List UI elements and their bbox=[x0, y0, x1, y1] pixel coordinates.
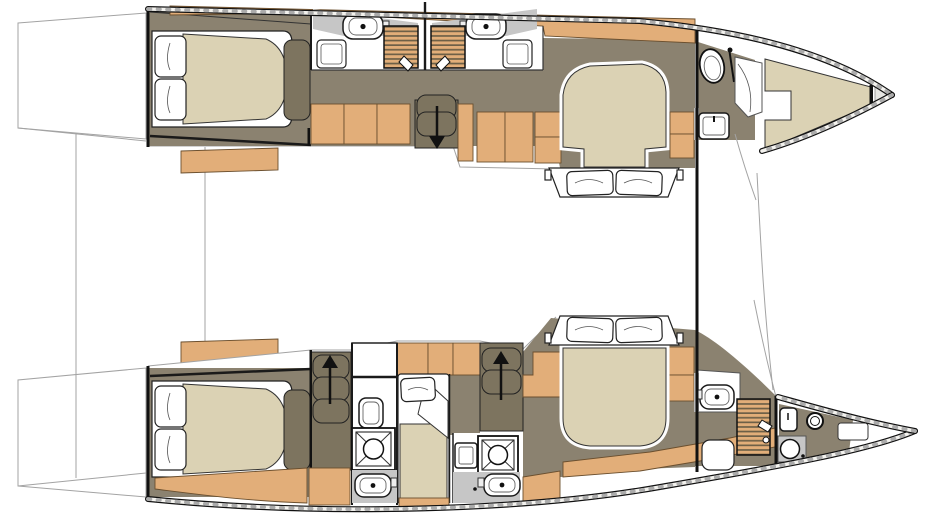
cabinet-4 bbox=[477, 112, 505, 162]
port-transom-platform bbox=[18, 13, 146, 139]
stbd-mid-floor bbox=[450, 375, 480, 435]
berth-cabinet-3 bbox=[453, 343, 480, 375]
single-berth-cushion bbox=[400, 424, 447, 502]
sink-drain bbox=[715, 395, 720, 400]
shower-drain bbox=[489, 446, 508, 465]
deck-band-block bbox=[309, 468, 350, 505]
galley-cabinet-3 bbox=[377, 104, 410, 144]
shower-drain bbox=[364, 439, 384, 459]
port-aft-pillow-1 bbox=[155, 36, 186, 77]
forward-crossbeam bbox=[696, 30, 699, 472]
bow-shelf bbox=[838, 423, 868, 440]
faucet-tab bbox=[478, 478, 484, 487]
port-aft-bed-duvet bbox=[183, 34, 287, 124]
cockpit-bench-port bbox=[181, 148, 278, 173]
stbd-single-berth bbox=[398, 374, 450, 504]
bridgedeck-cockpit bbox=[181, 147, 278, 367]
tall-cabinet bbox=[458, 104, 473, 161]
bedside-cabinet-2 bbox=[670, 134, 694, 158]
stbd-aft-headboard-unit bbox=[284, 390, 310, 470]
starboard-transom-platform bbox=[18, 368, 146, 497]
bow-bulkhead bbox=[775, 396, 778, 468]
bed-foot-tab bbox=[545, 333, 551, 343]
deck-band-mid bbox=[523, 471, 560, 502]
floor-plan-canvas bbox=[0, 0, 949, 514]
bedside-cabinet-1 bbox=[670, 112, 694, 134]
sink-drain bbox=[371, 483, 376, 488]
stbd-aft-pillow-1 bbox=[155, 386, 186, 427]
stbd-stern-bulkhead bbox=[147, 366, 150, 499]
stbd-forward-pillow-2 bbox=[616, 317, 663, 343]
bed-foot-tab bbox=[677, 170, 683, 180]
stbd-forward-pillow-1 bbox=[567, 317, 614, 343]
port-inner-wall-stub bbox=[308, 128, 311, 146]
heads-seat bbox=[702, 440, 734, 470]
bedside-cabinet-4 bbox=[668, 375, 694, 401]
berth-cabinet-2 bbox=[428, 343, 453, 375]
cabinet-7 bbox=[535, 137, 561, 163]
trampoline-line bbox=[757, 173, 773, 390]
cabinet-5 bbox=[505, 112, 533, 162]
bed-foot-tab bbox=[677, 333, 683, 343]
catamaran-floor-plan bbox=[0, 0, 949, 514]
shower-head bbox=[728, 48, 733, 53]
tap-dot bbox=[473, 487, 477, 491]
port-aft-headboard-unit bbox=[284, 40, 310, 120]
stbd-forward-bed bbox=[563, 348, 666, 446]
stern-transom-platforms bbox=[18, 13, 146, 497]
bath1-counter-top bbox=[352, 343, 397, 377]
port-aft-cabin bbox=[149, 11, 311, 146]
port-platform-edge bbox=[18, 128, 146, 141]
bedside-cabinet-3 bbox=[668, 347, 694, 375]
single-berth-pillow bbox=[400, 377, 435, 402]
berth-cabinet-1 bbox=[397, 343, 428, 375]
galley-cabinet-2 bbox=[344, 104, 377, 144]
port-stern-bulkhead bbox=[147, 9, 150, 147]
shower-control bbox=[763, 437, 769, 443]
stbd-aft-bed-duvet bbox=[183, 384, 287, 474]
flush-button bbox=[801, 454, 805, 458]
bed-foot-tab bbox=[545, 170, 551, 180]
stbd-mid-shower-room bbox=[453, 433, 520, 503]
faucet-tab bbox=[391, 478, 397, 487]
deck-hatch bbox=[807, 413, 823, 429]
port-aft-pillow-2 bbox=[155, 79, 186, 120]
sink-drain bbox=[500, 483, 505, 488]
port-forward-pillow-2 bbox=[616, 170, 663, 196]
galley-cabinet-1 bbox=[311, 104, 344, 144]
stbd-aft-pillow-2 bbox=[155, 429, 186, 470]
bow-toilet bbox=[781, 440, 800, 459]
starboard-platform-edge bbox=[18, 473, 146, 486]
port-forward-pillow-1 bbox=[567, 170, 614, 196]
cabinet-6 bbox=[535, 112, 561, 137]
